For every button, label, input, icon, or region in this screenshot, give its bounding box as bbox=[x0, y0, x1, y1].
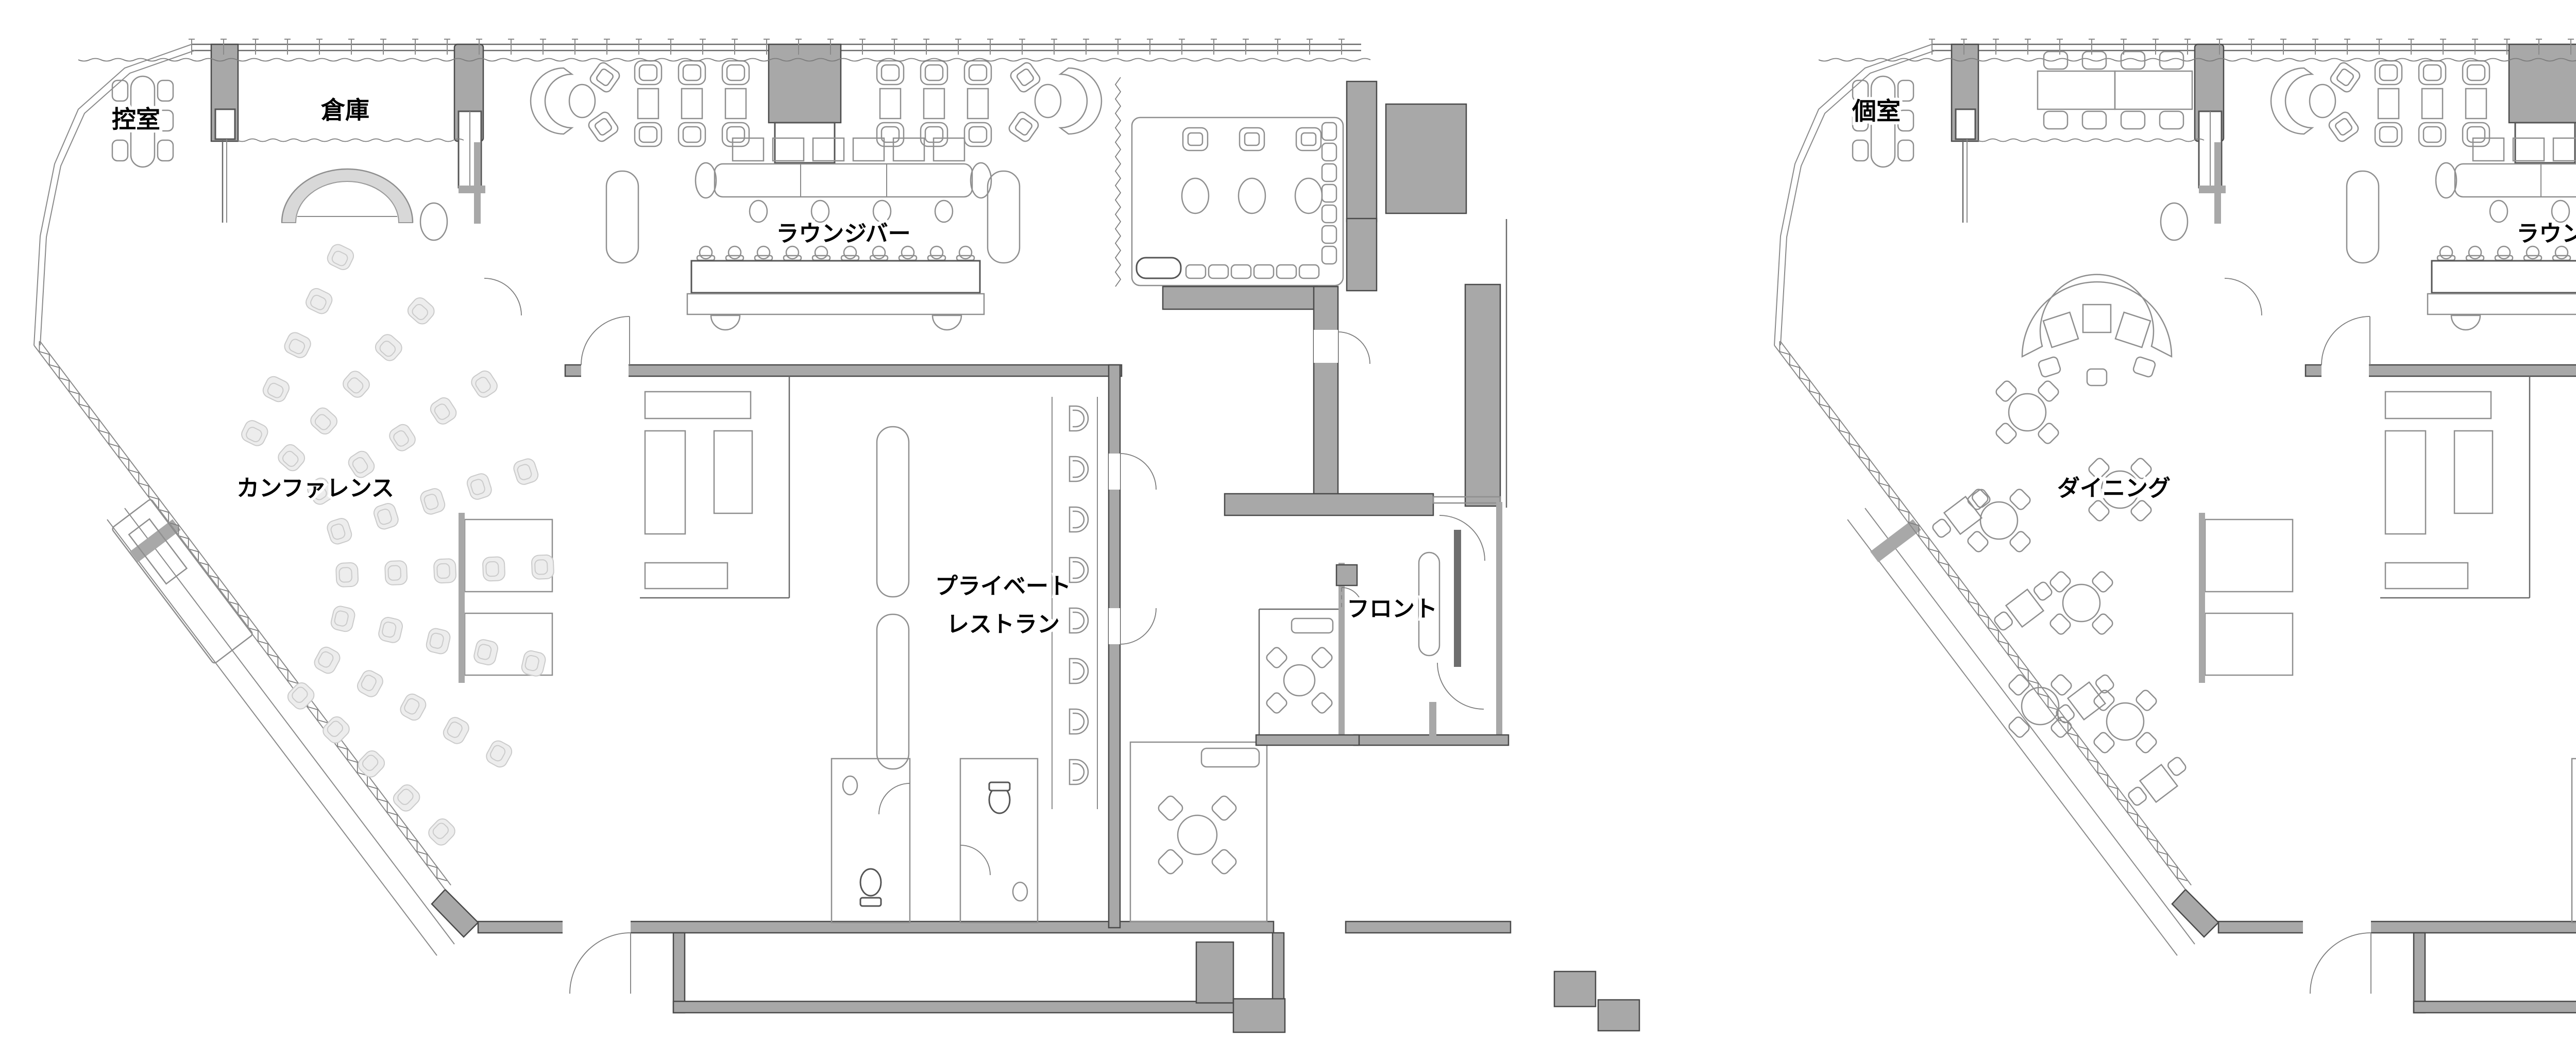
floor-plan-left: 控室 倉庫 ラウンジバー カンファレンス プライベート レストラン フロント bbox=[34, 39, 1639, 1032]
room-label-storage: 倉庫 bbox=[320, 96, 369, 124]
room-label-conference: カンファレンス bbox=[236, 476, 394, 501]
room-label-front-desk: フロント bbox=[1347, 596, 1437, 622]
floor-plan-canvas: 控室 倉庫 ラウンジバー カンファレンス プライベート レストラン フロント bbox=[0, 0, 2576, 1056]
eight-seat-table bbox=[2038, 71, 2192, 109]
page: 控室 倉庫 ラウンジバー カンファレンス プライベート レストラン フロント bbox=[0, 0, 2576, 1056]
room-label-lounge-bar: ラウンジバー bbox=[2516, 221, 2576, 246]
room-label-anteroom: 控室 bbox=[112, 106, 160, 133]
stage bbox=[111, 498, 253, 664]
canopy-arc bbox=[282, 169, 413, 223]
room-label-dining: ダイニング bbox=[2057, 476, 2171, 501]
floor-plan-right: 個室 ラウンジバー ダイニング プライベート レストラン フロント bbox=[1774, 39, 2576, 1032]
room-label-private-restaurant-2: レストラン bbox=[946, 612, 1060, 637]
room-label-lounge-bar: ラウンジバー bbox=[776, 221, 910, 246]
room-label-private-room: 個室 bbox=[1852, 97, 1901, 125]
dining-furniture bbox=[1929, 52, 2192, 813]
conference-furniture bbox=[111, 169, 554, 848]
fan-banquette bbox=[2022, 275, 2172, 385]
room-label-private-restaurant-1: プライベート bbox=[935, 574, 1071, 599]
